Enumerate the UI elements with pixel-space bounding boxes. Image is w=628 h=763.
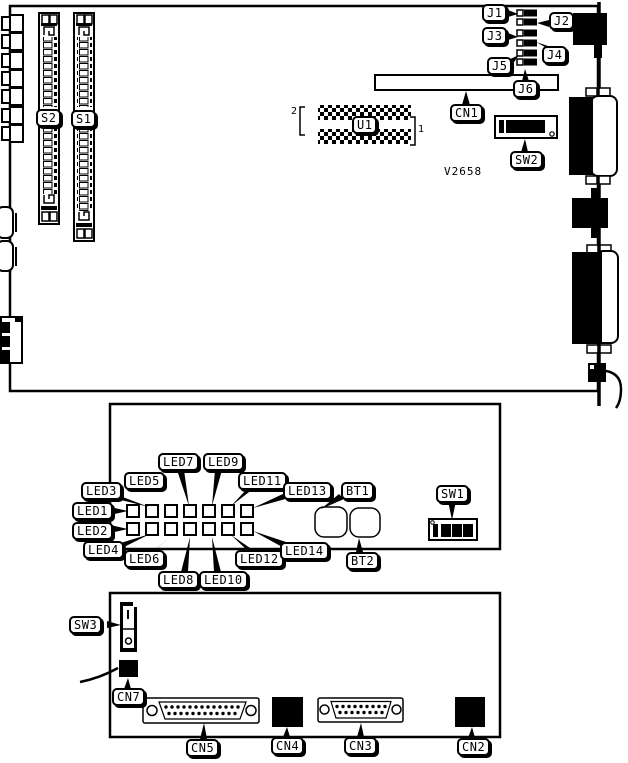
led-indicator bbox=[146, 523, 158, 535]
label-led12: LED12 bbox=[235, 550, 284, 568]
label-cn1: CN1 bbox=[450, 104, 483, 122]
led-indicator bbox=[241, 523, 253, 535]
label-sw2: SW2 bbox=[510, 151, 543, 169]
label-led14: LED14 bbox=[280, 542, 329, 560]
label-cn4: CN4 bbox=[271, 737, 304, 755]
label-u1: U1 bbox=[352, 116, 377, 134]
led-indicator bbox=[127, 505, 139, 517]
led-indicator bbox=[203, 523, 215, 535]
cn2-connector bbox=[455, 697, 485, 727]
label-led10: LED10 bbox=[199, 571, 248, 589]
led-indicator bbox=[184, 523, 196, 535]
label-sw1: SW1 bbox=[436, 485, 469, 503]
led-indicator bbox=[165, 523, 177, 535]
label-led8: LED8 bbox=[158, 571, 199, 589]
bt2-button bbox=[350, 508, 380, 537]
pcb-layout-diagram: J1 J2 J3 J4 J5 J6 CN1 SW2 S2 S1 U1 V2658… bbox=[0, 0, 628, 763]
sw3-power-switch bbox=[120, 602, 137, 652]
cn4-connector bbox=[272, 697, 303, 727]
silkscreen-part-number: V2658 bbox=[444, 166, 482, 178]
label-led9: LED9 bbox=[203, 453, 244, 471]
left-edge-component bbox=[1, 317, 22, 363]
cn3-db15-connector bbox=[318, 698, 403, 722]
db-connector-lower bbox=[572, 245, 618, 353]
label-j2: J2 bbox=[549, 12, 574, 30]
led-indicator bbox=[222, 523, 234, 535]
label-led4: LED4 bbox=[83, 541, 124, 559]
label-led3: LED3 bbox=[81, 482, 122, 500]
cn5-db25-connector bbox=[143, 698, 259, 723]
u1-pin2-marker: 2 bbox=[291, 107, 297, 117]
led-indicator bbox=[127, 523, 139, 535]
label-bt2: BT2 bbox=[346, 552, 379, 570]
label-led1: LED1 bbox=[72, 502, 113, 520]
label-led6: LED6 bbox=[124, 550, 165, 568]
label-s2: S2 bbox=[36, 109, 61, 127]
u1-pin1-marker: 1 bbox=[418, 125, 424, 135]
label-led5: LED5 bbox=[124, 472, 165, 490]
label-j3: J3 bbox=[482, 27, 507, 45]
label-led13: LED13 bbox=[283, 482, 332, 500]
label-led11: LED11 bbox=[238, 472, 287, 490]
label-cn2: CN2 bbox=[457, 738, 490, 756]
label-sw3: SW3 bbox=[69, 616, 102, 634]
label-j1: J1 bbox=[482, 4, 507, 22]
led-indicator bbox=[203, 505, 215, 517]
label-s1: S1 bbox=[71, 110, 96, 128]
led-indicator bbox=[184, 505, 196, 517]
led-indicator bbox=[222, 505, 234, 517]
bt1-button bbox=[315, 507, 347, 537]
led-indicator bbox=[165, 505, 177, 517]
label-led2: LED2 bbox=[72, 522, 113, 540]
label-j5: J5 bbox=[487, 57, 512, 75]
label-cn3: CN3 bbox=[344, 737, 377, 755]
sw1-dip-switch bbox=[429, 519, 477, 540]
label-bt1: BT1 bbox=[341, 482, 374, 500]
label-cn7: CN7 bbox=[112, 688, 145, 706]
led-indicator bbox=[146, 505, 158, 517]
label-cn5: CN5 bbox=[186, 739, 219, 757]
label-j6: J6 bbox=[513, 80, 538, 98]
label-led7: LED7 bbox=[158, 453, 199, 471]
db-connector-upper bbox=[569, 88, 617, 184]
edge-indicator-squares bbox=[2, 15, 23, 142]
label-j4: J4 bbox=[542, 46, 567, 64]
led-indicator bbox=[241, 505, 253, 517]
sw2-dip-switch bbox=[495, 116, 557, 138]
